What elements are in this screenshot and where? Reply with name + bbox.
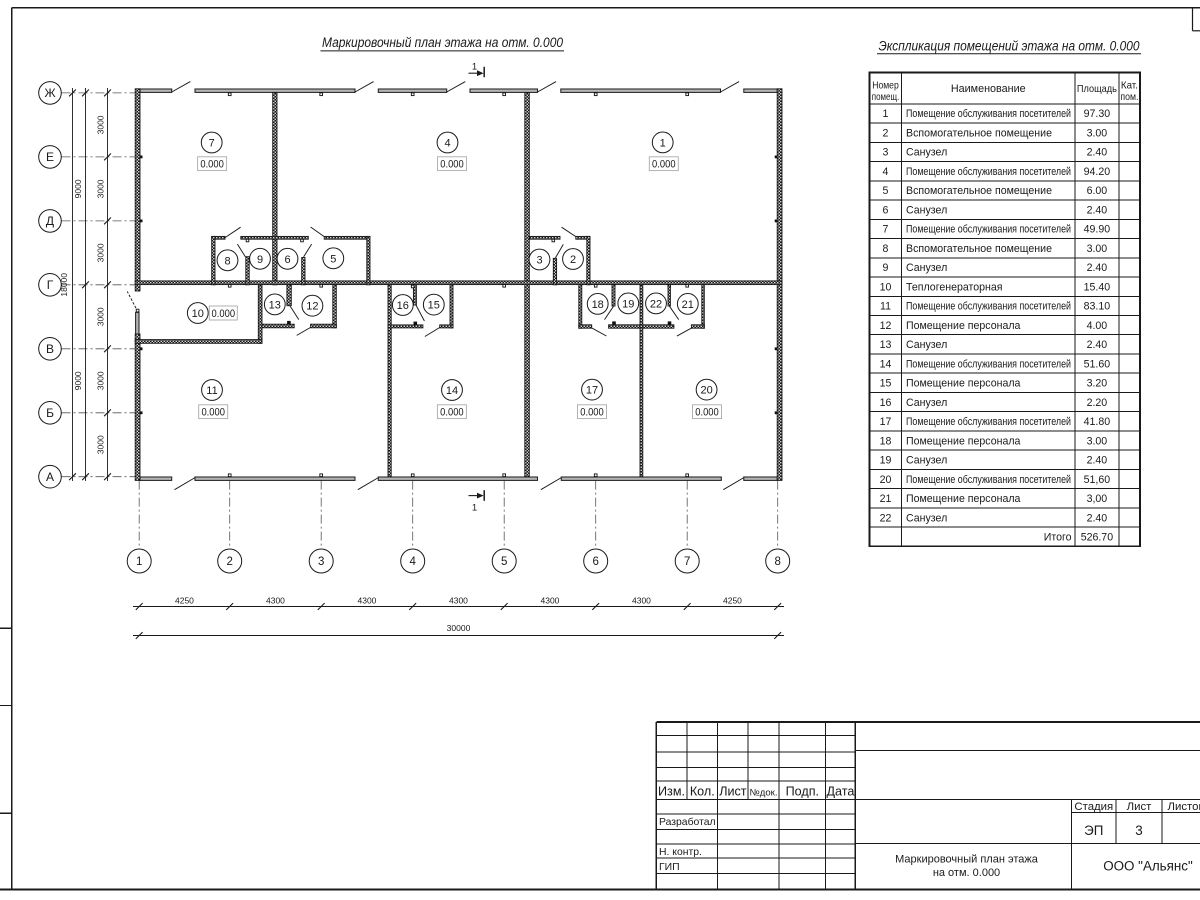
svg-text:17: 17 <box>586 385 598 397</box>
svg-text:Вспомогательное помещение: Вспомогательное помещение <box>906 185 1052 197</box>
svg-text:12: 12 <box>306 301 318 313</box>
svg-text:9: 9 <box>257 254 263 266</box>
svg-text:83.10: 83.10 <box>1084 301 1111 313</box>
svg-text:16: 16 <box>397 300 409 312</box>
svg-text:21: 21 <box>682 299 694 311</box>
svg-text:15: 15 <box>428 300 440 312</box>
svg-text:14: 14 <box>446 385 458 397</box>
svg-text:11: 11 <box>206 385 217 397</box>
svg-text:Вспомогательное помещение: Вспомогательное помещение <box>906 243 1052 255</box>
svg-text:13: 13 <box>880 339 892 351</box>
svg-text:Санузел: Санузел <box>906 397 947 409</box>
svg-text:0.000: 0.000 <box>440 407 464 419</box>
svg-text:3.20: 3.20 <box>1087 378 1108 390</box>
svg-text:2: 2 <box>883 127 889 139</box>
svg-text:16: 16 <box>880 397 892 409</box>
svg-text:0.000: 0.000 <box>652 159 676 171</box>
svg-text:22: 22 <box>880 512 892 524</box>
svg-text:4300: 4300 <box>540 596 559 606</box>
svg-text:3000: 3000 <box>96 179 106 198</box>
svg-text:В: В <box>46 342 54 356</box>
svg-text:пом.: пом. <box>1120 92 1138 103</box>
svg-text:9: 9 <box>883 262 889 274</box>
svg-text:Кат.: Кат. <box>1121 81 1138 92</box>
svg-text:6.00: 6.00 <box>1087 185 1108 197</box>
svg-text:3: 3 <box>318 556 324 568</box>
svg-text:5: 5 <box>501 556 507 568</box>
svg-text:5: 5 <box>883 185 889 197</box>
svg-text:2: 2 <box>570 254 576 266</box>
svg-text:Лист: Лист <box>719 784 747 798</box>
svg-text:30000: 30000 <box>447 623 471 633</box>
svg-text:4300: 4300 <box>357 596 376 606</box>
svg-text:3: 3 <box>1135 823 1142 838</box>
svg-text:Помещение обслуживания посетит: Помещение обслуживания посетителей <box>906 474 1071 486</box>
svg-text:10: 10 <box>192 308 204 320</box>
svg-text:на отм. 0.000: на отм. 0.000 <box>933 867 1000 879</box>
svg-text:0.000: 0.000 <box>200 159 224 171</box>
svg-text:3000: 3000 <box>96 243 106 262</box>
svg-text:8: 8 <box>224 255 230 267</box>
svg-text:13: 13 <box>269 299 281 311</box>
svg-text:19: 19 <box>880 455 892 467</box>
svg-text:ГИП: ГИП <box>659 862 680 873</box>
svg-text:Листов: Листов <box>1167 801 1200 813</box>
svg-text:Кол.: Кол. <box>690 784 715 798</box>
svg-text:4300: 4300 <box>632 596 651 606</box>
svg-text:1: 1 <box>472 62 477 73</box>
svg-text:Помещение обслуживания посетит: Помещение обслуживания посетителей <box>906 416 1071 428</box>
svg-text:3000: 3000 <box>96 115 106 134</box>
svg-text:8: 8 <box>883 243 889 255</box>
svg-text:Наименование: Наименование <box>951 83 1026 95</box>
svg-text:А: А <box>46 470 54 484</box>
svg-text:4250: 4250 <box>723 596 742 606</box>
svg-text:4: 4 <box>409 556 416 568</box>
svg-text:0.000: 0.000 <box>580 407 604 419</box>
svg-text:6: 6 <box>592 556 598 568</box>
svg-text:18: 18 <box>880 435 892 447</box>
svg-text:12: 12 <box>880 320 892 332</box>
svg-text:97.30: 97.30 <box>1084 108 1111 120</box>
svg-text:Экспликация помещений этажа на: Экспликация помещений этажа на отм. 0.00… <box>879 38 1140 53</box>
svg-text:Теплогенераторная: Теплогенераторная <box>906 281 1003 293</box>
svg-text:1: 1 <box>472 503 477 514</box>
svg-text:0.000: 0.000 <box>695 407 719 419</box>
svg-text:Санузел: Санузел <box>906 262 947 274</box>
svg-text:ЭП: ЭП <box>1084 823 1103 838</box>
svg-text:4: 4 <box>883 166 889 178</box>
svg-text:3.00: 3.00 <box>1087 435 1108 447</box>
svg-text:помещ.: помещ. <box>872 92 900 103</box>
svg-text:18: 18 <box>592 299 604 311</box>
svg-text:Д: Д <box>46 214 54 228</box>
svg-text:3.00: 3.00 <box>1087 243 1108 255</box>
svg-text:2.40: 2.40 <box>1087 262 1108 274</box>
svg-text:10: 10 <box>880 281 892 293</box>
svg-text:3.00: 3.00 <box>1087 127 1108 139</box>
svg-text:7: 7 <box>684 556 690 568</box>
svg-text:Разработал: Разработал <box>659 816 716 828</box>
svg-text:Помещение обслуживания посетит: Помещение обслуживания посетителей <box>906 108 1071 120</box>
svg-text:Помещение обслуживания посетит: Помещение обслуживания посетителей <box>906 224 1071 236</box>
svg-text:Б: Б <box>46 406 54 420</box>
svg-text:41.80: 41.80 <box>1084 416 1111 428</box>
svg-text:1: 1 <box>883 108 889 120</box>
svg-text:Дата: Дата <box>826 784 854 798</box>
svg-text:3000: 3000 <box>96 371 106 390</box>
svg-text:18000: 18000 <box>59 273 69 297</box>
svg-text:526.70: 526.70 <box>1081 532 1114 544</box>
svg-text:49.90: 49.90 <box>1084 224 1111 236</box>
svg-text:Итого: Итого <box>1044 532 1072 544</box>
svg-text:№док.: №док. <box>749 787 777 798</box>
svg-text:7: 7 <box>209 137 215 149</box>
svg-text:9000: 9000 <box>73 179 83 198</box>
svg-text:Санузел: Санузел <box>906 147 947 159</box>
svg-text:4: 4 <box>444 137 450 149</box>
svg-text:1: 1 <box>660 137 666 149</box>
svg-text:20: 20 <box>700 385 712 397</box>
svg-text:1: 1 <box>136 556 142 568</box>
svg-text:3,00: 3,00 <box>1087 493 1108 505</box>
svg-text:Ж: Ж <box>44 86 55 100</box>
svg-text:51,60: 51,60 <box>1084 474 1111 486</box>
svg-text:21: 21 <box>880 493 892 505</box>
svg-text:51.60: 51.60 <box>1084 358 1111 370</box>
svg-text:Помещение персонала: Помещение персонала <box>906 378 1021 390</box>
svg-text:22: 22 <box>650 298 662 310</box>
svg-text:6: 6 <box>284 254 290 266</box>
svg-text:5: 5 <box>330 253 336 265</box>
svg-text:2.40: 2.40 <box>1087 147 1108 159</box>
svg-text:Помещение обслуживания посетит: Помещение обслуживания посетителей <box>906 358 1071 370</box>
svg-text:6: 6 <box>883 204 889 216</box>
svg-text:Площадь: Площадь <box>1077 84 1117 95</box>
svg-text:Подп.: Подп. <box>786 784 819 798</box>
svg-text:Санузел: Санузел <box>906 204 947 216</box>
svg-text:Помещение персонала: Помещение персонала <box>906 493 1021 505</box>
svg-text:14: 14 <box>880 358 892 370</box>
svg-text:94.20: 94.20 <box>1084 166 1111 178</box>
svg-text:ООО "Альянс": ООО "Альянс" <box>1103 859 1193 874</box>
svg-text:Вспомогательное помещение: Вспомогательное помещение <box>906 127 1052 139</box>
svg-text:4300: 4300 <box>266 596 285 606</box>
svg-text:Изм.: Изм. <box>658 784 685 798</box>
svg-text:2.20: 2.20 <box>1087 397 1108 409</box>
svg-text:2.40: 2.40 <box>1087 339 1108 351</box>
svg-text:Маркировочный план этажа на от: Маркировочный план этажа на отм. 0.000 <box>322 35 563 50</box>
svg-text:0.000: 0.000 <box>212 308 236 320</box>
svg-text:9000: 9000 <box>73 371 83 390</box>
svg-text:3000: 3000 <box>96 307 106 326</box>
svg-text:15: 15 <box>880 378 892 390</box>
svg-text:2.40: 2.40 <box>1087 204 1108 216</box>
svg-text:Санузел: Санузел <box>906 455 947 467</box>
svg-text:2.40: 2.40 <box>1087 455 1108 467</box>
svg-text:4300: 4300 <box>449 596 468 606</box>
svg-text:11: 11 <box>880 301 891 313</box>
svg-text:4.00: 4.00 <box>1087 320 1108 332</box>
svg-text:Е: Е <box>46 150 54 164</box>
svg-text:Номер: Номер <box>872 81 899 92</box>
svg-text:20: 20 <box>880 474 892 486</box>
svg-text:0.000: 0.000 <box>201 407 225 419</box>
svg-text:19: 19 <box>622 298 634 310</box>
svg-text:3000: 3000 <box>96 435 106 454</box>
svg-text:2: 2 <box>226 556 232 568</box>
svg-text:3: 3 <box>883 147 889 159</box>
svg-text:Санузел: Санузел <box>906 339 947 351</box>
svg-text:15.40: 15.40 <box>1084 281 1111 293</box>
svg-text:3: 3 <box>536 254 542 266</box>
svg-text:Помещение персонала: Помещение персонала <box>906 435 1021 447</box>
svg-text:8: 8 <box>774 556 780 568</box>
svg-text:7: 7 <box>883 224 889 236</box>
svg-text:Маркировочный план этажа: Маркировочный план этажа <box>895 854 1039 866</box>
svg-text:Помещение персонала: Помещение персонала <box>906 320 1021 332</box>
svg-text:0.000: 0.000 <box>440 159 464 171</box>
svg-text:Помещение обслуживания посетит: Помещение обслуживания посетителей <box>906 166 1071 178</box>
svg-text:Н. контр.: Н. контр. <box>659 847 702 858</box>
svg-text:2.40: 2.40 <box>1087 512 1108 524</box>
svg-text:Помещение обслуживания посетит: Помещение обслуживания посетителей <box>906 301 1071 313</box>
svg-text:17: 17 <box>880 416 892 428</box>
svg-text:Санузел: Санузел <box>906 512 947 524</box>
svg-text:Г: Г <box>47 278 54 292</box>
svg-text:Лист: Лист <box>1127 801 1153 813</box>
svg-text:Стадия: Стадия <box>1074 801 1113 813</box>
svg-text:4250: 4250 <box>175 596 194 606</box>
